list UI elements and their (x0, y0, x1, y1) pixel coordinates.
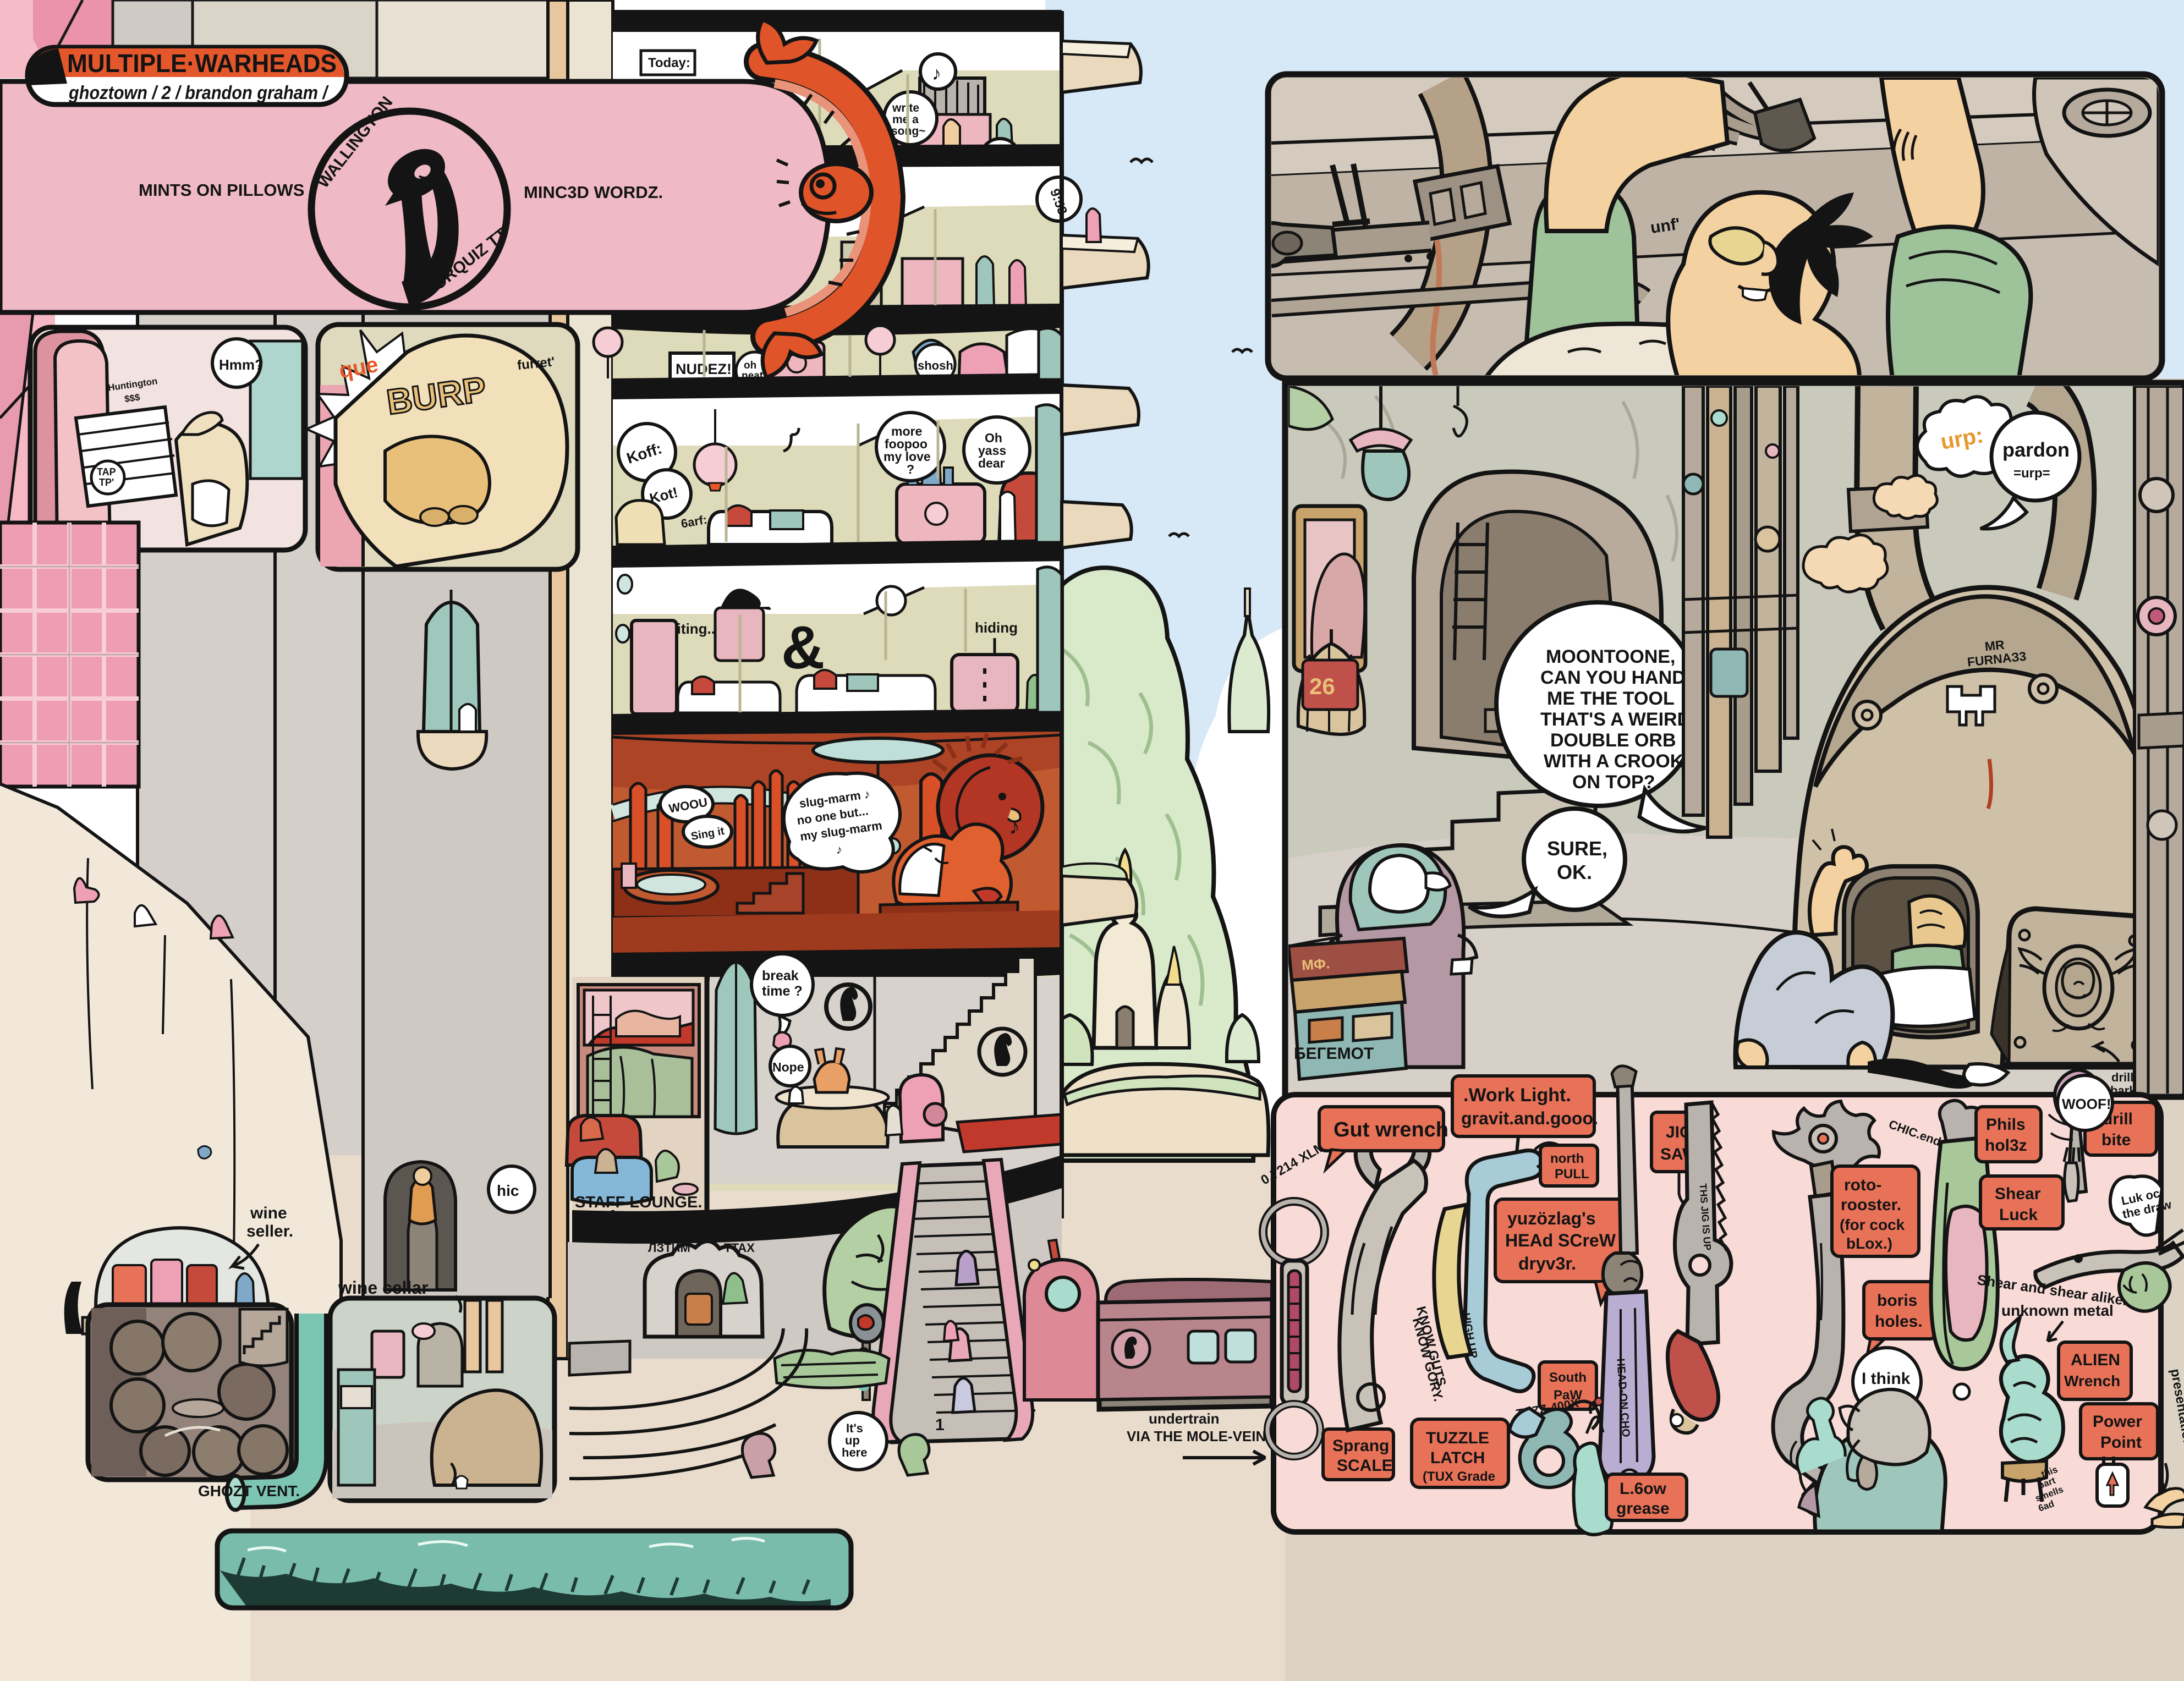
svg-text:MФ.: MФ. (1301, 955, 1330, 973)
svg-text:Point: Point (2100, 1433, 2142, 1452)
svg-text:ON TOP?: ON TOP? (1572, 772, 1655, 793)
svg-text:(TUX Grade: (TUX Grade (1423, 1469, 1495, 1484)
svg-text:roto-: roto- (1844, 1176, 1881, 1194)
svg-text:Hmm?: Hmm? (219, 356, 264, 373)
svg-text:undertrain: undertrain (1149, 1410, 1220, 1427)
svg-text:drill: drill (2111, 1070, 2133, 1084)
svg-text:26: 26 (1309, 673, 1335, 699)
svg-text:wine cellar: wine cellar (338, 1278, 429, 1298)
svg-text:grease: grease (1616, 1499, 1670, 1518)
svg-text:gravit.and.gooo.: gravit.and.gooo. (1461, 1108, 1598, 1128)
svg-text:I think: I think (1862, 1370, 1911, 1388)
svg-text:ЛЗTИM: ЛЗTИM (648, 1241, 690, 1255)
svg-text:ghoztown / 2 / brandon graham: ghoztown / 2 / brandon graham / (68, 83, 329, 103)
svg-text:South: South (1549, 1370, 1587, 1385)
svg-text:WITH A CROOK: WITH A CROOK (1544, 751, 1684, 772)
svg-text:Nope: Nope (772, 1060, 804, 1074)
svg-text:time ?: time ? (762, 984, 803, 999)
svg-text:boris: boris (1877, 1292, 1917, 1310)
svg-text:Sprang: Sprang (1332, 1437, 1389, 1455)
svg-text:♪: ♪ (1009, 815, 1020, 839)
svg-text:bLox.): bLox.) (1846, 1235, 1892, 1252)
svg-text:bark: bark (2110, 1084, 2136, 1097)
svg-text:Wrench: Wrench (2064, 1372, 2120, 1389)
svg-text:VIA THE MOLE-VEIN: VIA THE MOLE-VEIN (1127, 1428, 1266, 1444)
svg-text:dear: dear (978, 456, 1005, 470)
svg-text:north: north (1550, 1151, 1584, 1166)
svg-text:STAFF LOUNGE.: STAFF LOUNGE. (575, 1194, 702, 1211)
svg-text:break: break (762, 968, 799, 984)
svg-text:bite: bite (2101, 1131, 2131, 1149)
svg-text:ME THE TOOL: ME THE TOOL (1547, 688, 1675, 709)
svg-text:Power: Power (2093, 1413, 2142, 1431)
svg-text:here: here (842, 1446, 867, 1459)
svg-text:oh: oh (744, 360, 756, 371)
svg-text:me a: me a (892, 113, 919, 126)
svg-text:MINC3D WORDZ.: MINC3D WORDZ. (524, 183, 663, 202)
svg-text:HEAd SCreW: HEAd SCreW (1505, 1230, 1616, 1250)
svg-text:Shear: Shear (1995, 1185, 2041, 1203)
svg-text:yuzözlag's: yuzözlag's (1507, 1208, 1596, 1228)
svg-text:♪: ♪ (932, 63, 941, 84)
svg-text:dryv3r.: dryv3r. (1518, 1254, 1576, 1273)
svg-text:♪: ♪ (836, 843, 842, 856)
svg-text:(for cock: (for cock (1840, 1216, 1905, 1233)
svg-text:TUZZLE: TUZZLE (1426, 1429, 1489, 1447)
svg-text:Gut wrench: Gut wrench (1334, 1118, 1448, 1141)
svg-text:ALIEN: ALIEN (2071, 1351, 2120, 1369)
svg-text:TTAX: TTAX (724, 1241, 755, 1255)
svg-text:hol3z: hol3z (1985, 1136, 2027, 1155)
svg-text:WOOF!: WOOF! (2062, 1096, 2111, 1112)
svg-text:LATCH: LATCH (1430, 1449, 1485, 1467)
svg-text:1: 1 (935, 1416, 945, 1434)
svg-text:write: write (892, 102, 919, 114)
svg-text:L.6ow: L.6ow (1620, 1480, 1667, 1498)
svg-text:MOONTOONE,: MOONTOONE, (1546, 646, 1676, 667)
svg-text:holes.: holes. (1875, 1312, 1923, 1331)
svg-text:.Work Light.: .Work Light. (1463, 1085, 1571, 1106)
svg-text:TAP: TAP (97, 466, 116, 477)
svg-text:Phils: Phils (1986, 1116, 2026, 1134)
svg-text:hiding: hiding (975, 619, 1018, 636)
svg-text:GHOZT VENT.: GHOZT VENT. (198, 1482, 300, 1499)
svg-text:seller.: seller. (246, 1222, 293, 1240)
svg-text:MULTIPLE·WARHEADS: MULTIPLE·WARHEADS (67, 49, 337, 78)
svg-text:SURE,: SURE, (1547, 837, 1607, 860)
svg-text:hic: hic (497, 1182, 519, 1199)
svg-text:=urp=: =urp= (2013, 466, 2050, 481)
svg-text:?: ? (907, 462, 914, 476)
svg-text:DOUBLE ORB: DOUBLE ORB (1550, 730, 1676, 751)
svg-text:SCALE: SCALE (1337, 1457, 1393, 1475)
svg-text:Today:: Today: (648, 56, 690, 70)
svg-text:shosh: shosh (918, 359, 953, 372)
svg-text:rooster.: rooster. (1841, 1196, 1901, 1214)
svg-text:TP': TP' (99, 477, 114, 488)
svg-text:OK.: OK. (1557, 861, 1592, 883)
svg-text:THAT'S A WEIRD: THAT'S A WEIRD (1540, 709, 1691, 730)
svg-text:CAN YOU HAND: CAN YOU HAND (1540, 667, 1686, 688)
svg-text:MINTS ON PILLOWS: MINTS ON PILLOWS (139, 180, 304, 200)
svg-text:pardon: pardon (2002, 438, 2070, 461)
svg-text:БЕГЕMOT: БЕГЕMOT (1294, 1045, 1374, 1063)
svg-text:$$$: $$$ (124, 392, 141, 404)
svg-text:wine: wine (250, 1204, 287, 1222)
svg-text:PULL: PULL (1555, 1167, 1589, 1182)
svg-text:Luck: Luck (1999, 1206, 2038, 1224)
